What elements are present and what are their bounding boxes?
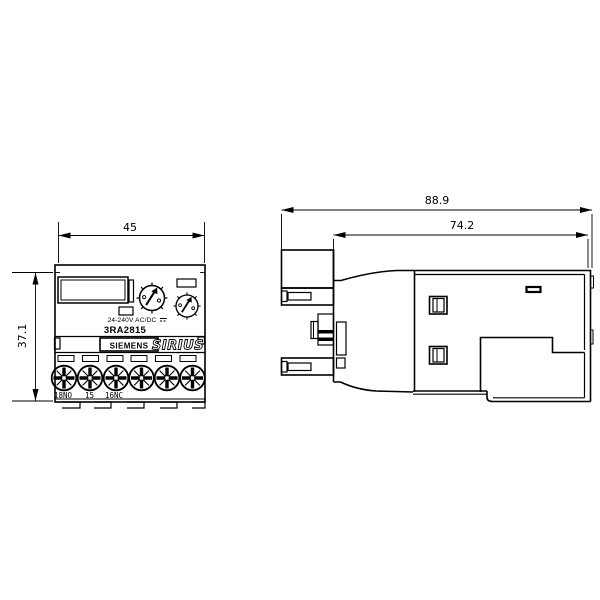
screw-port-upper bbox=[430, 297, 448, 315]
dimension-arrow-right bbox=[576, 232, 588, 238]
guide-rail bbox=[337, 322, 347, 355]
lower-mounting-claw bbox=[282, 358, 334, 375]
terminal-screw bbox=[104, 366, 129, 391]
front-width-dimension: 45 bbox=[59, 221, 205, 263]
dimension-arrow-left bbox=[282, 207, 294, 213]
guide-rail-stop bbox=[337, 358, 346, 368]
terminal-screw bbox=[155, 366, 180, 391]
display-window bbox=[58, 277, 134, 303]
terminal-screw bbox=[78, 366, 103, 391]
front-view: 45 37.1 bbox=[12, 221, 205, 408]
front-height-dimension: 37.1 bbox=[12, 273, 53, 402]
upper-mounting-claw bbox=[282, 250, 334, 305]
terminal-block: 18NO 15 16NC bbox=[52, 356, 205, 401]
side-body-outline bbox=[334, 271, 594, 402]
side-overall-depth-dimension: 88.9 bbox=[282, 194, 593, 268]
mounting-feet bbox=[62, 402, 205, 408]
dimension-arrow-right bbox=[580, 207, 592, 213]
side-overall-depth-value: 88.9 bbox=[425, 194, 450, 207]
terminal-screw bbox=[52, 366, 77, 391]
side-mounting-depth-value: 74.2 bbox=[450, 219, 475, 232]
retaining-clip bbox=[311, 314, 334, 345]
technical-drawing-canvas: 45 37.1 bbox=[0, 0, 600, 600]
screw-port-lower bbox=[430, 347, 448, 365]
dimension-arrow-right bbox=[193, 233, 205, 239]
dimension-arrow-bottom bbox=[33, 389, 39, 401]
rating-label: 24-240V AC/DC bbox=[108, 317, 157, 324]
dimension-arrow-left bbox=[334, 232, 346, 238]
time-setting-dial bbox=[137, 283, 168, 314]
siemens-logo: SIEMENS bbox=[100, 338, 158, 351]
indicator-window bbox=[177, 279, 196, 287]
vent-slot bbox=[527, 287, 541, 292]
dimensional-drawing: 45 37.1 bbox=[0, 0, 600, 600]
dc-symbol-icon bbox=[160, 319, 167, 322]
dimension-arrow-top bbox=[33, 273, 39, 285]
front-width-dimension-value: 45 bbox=[123, 221, 137, 234]
front-height-dimension-value: 37.1 bbox=[16, 324, 29, 349]
terminal-screw bbox=[129, 366, 154, 391]
terminal-screw bbox=[180, 366, 205, 391]
reset-window bbox=[119, 307, 133, 315]
dimension-arrow-left bbox=[59, 233, 71, 239]
side-mounting-depth-dimension: 74.2 bbox=[334, 219, 589, 278]
side-view: 88.9 74.2 bbox=[282, 194, 594, 402]
siemens-logo-text: SIEMENS bbox=[110, 342, 149, 351]
function-setting-dial bbox=[173, 292, 200, 319]
sirius-logo: SIRIUS bbox=[152, 339, 204, 354]
model-number: 3RA2815 bbox=[104, 325, 147, 336]
